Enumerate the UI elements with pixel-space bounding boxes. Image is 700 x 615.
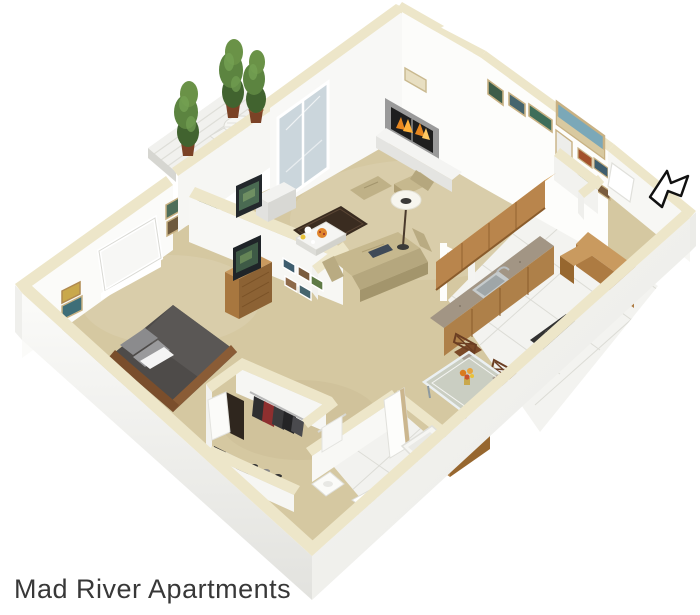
floor-plan-svg [0,0,700,615]
floor-plan-image: Mad River Apartments [0,0,700,615]
closet-door [208,392,244,440]
lemon [301,235,306,240]
caption-text: Mad River Apartments [14,574,291,604]
tree-foliage [174,81,199,147]
plate [305,227,312,234]
west-corner-face [15,285,22,340]
pizza [317,228,327,238]
tree-foliage [219,39,244,108]
caption: Mad River Apartments [14,574,291,605]
cup [311,240,315,244]
east-corner-face [690,212,696,252]
